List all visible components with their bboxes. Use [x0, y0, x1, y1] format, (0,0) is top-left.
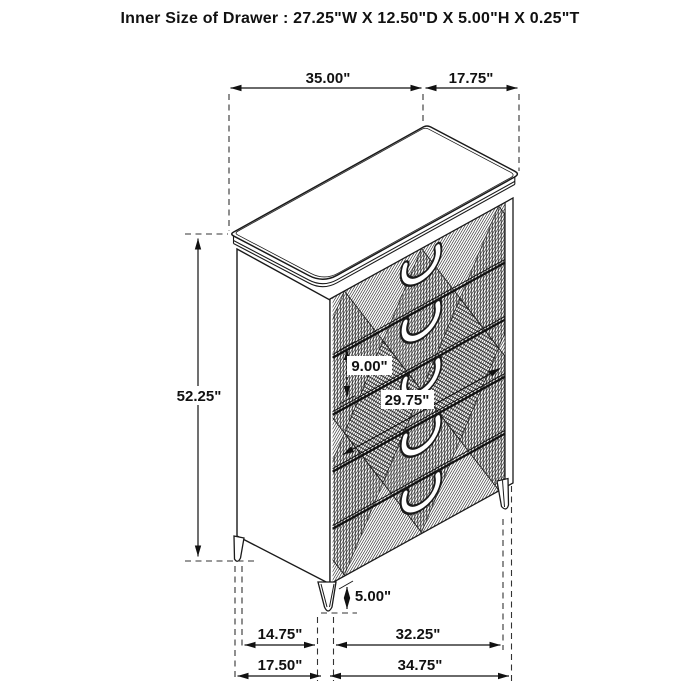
page-title: Inner Size of Drawer : 27.25"W X 12.50"D… — [0, 10, 700, 28]
chest-dimension-drawing: 35.00" 17.75" 52.25" 9.00" 29.75" — [0, 0, 700, 700]
dim-height-label: 52.25" — [177, 388, 222, 405]
dim-top-width-label: 35.00" — [306, 70, 351, 87]
dim-drawer-height-label: 9.00" — [351, 358, 387, 375]
dim-bottom-width-label: 34.75" — [398, 657, 443, 674]
leg-height-tick — [339, 581, 353, 589]
dim-bottom-depth-label: 17.50" — [258, 657, 303, 674]
dimension-diagram-page: Inner Size of Drawer : 27.25"W X 12.50"D… — [0, 0, 700, 700]
dim-bottom-inner-width-label: 32.25" — [396, 626, 441, 643]
dim-front-width-label: 29.75" — [385, 392, 430, 409]
left-leg — [234, 536, 244, 561]
chest-left-panel — [237, 249, 330, 584]
dim-bottom-inner-depth-label: 14.75" — [258, 626, 303, 643]
dim-top-depth-label: 17.75" — [449, 70, 494, 87]
dim-leg-height-label: 5.00" — [355, 588, 391, 605]
height-dimension: 52.25" — [171, 234, 254, 561]
